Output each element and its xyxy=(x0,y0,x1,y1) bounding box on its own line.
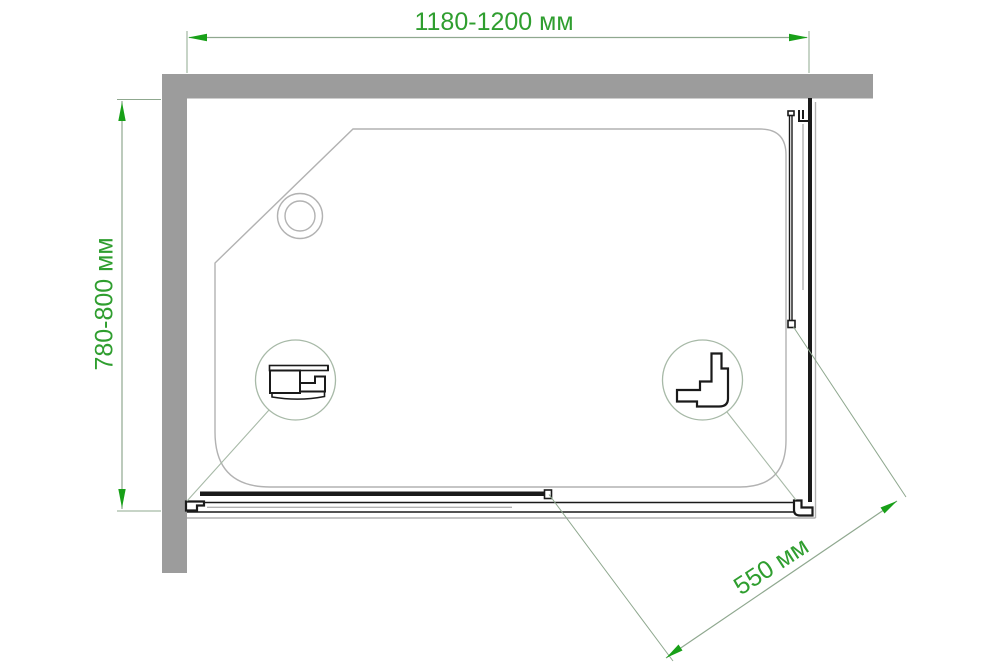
width-dimension-label: 1180-1200 мм xyxy=(414,8,573,36)
dimension-depth: 780-800 мм xyxy=(91,100,162,512)
detail-callout-right xyxy=(663,340,797,500)
dimension-width: 1180-1200 мм xyxy=(187,8,809,73)
door-arrow-lower xyxy=(666,645,683,659)
right-top-profile-hook xyxy=(799,110,808,121)
enclosure-outer-outline xyxy=(187,102,816,518)
door-glass-bottom-cap xyxy=(788,321,795,328)
right-side-panel-assembly xyxy=(788,98,813,516)
tray-outline xyxy=(215,129,786,487)
depth-extension-lines xyxy=(117,100,161,512)
bottom-sliding-door-glass xyxy=(200,492,545,497)
right-frame-profile xyxy=(808,98,812,502)
depth-arrow-bottom xyxy=(118,489,125,508)
door-arrow-upper xyxy=(881,501,898,514)
shower-tray xyxy=(215,129,786,487)
detail-callout-left xyxy=(187,340,336,501)
callout-left-leader-line xyxy=(187,410,269,501)
callout-left-circle xyxy=(256,340,336,420)
bottom-door-assembly xyxy=(186,490,794,512)
width-arrow-right xyxy=(789,34,808,41)
depth-arrow-top xyxy=(118,102,125,121)
door-glass-top-cap xyxy=(788,111,794,116)
left-wall xyxy=(162,74,187,573)
callout-right-circle xyxy=(663,340,743,420)
top-wall xyxy=(162,74,873,99)
technical-drawing-page: 1180-1200 мм 780-800 мм 550 мм xyxy=(0,0,1000,667)
corner-post-profile xyxy=(794,501,813,516)
right-sliding-door-glass xyxy=(790,114,793,321)
door-dimension-line xyxy=(666,501,897,658)
width-arrow-left xyxy=(188,34,207,41)
shower-enclosure-drawing: 1180-1200 мм 780-800 мм 550 мм xyxy=(0,0,1000,667)
drain-inner-circle xyxy=(285,201,315,231)
bottom-left-wall-profile xyxy=(186,502,204,511)
depth-dimension-label: 780-800 мм xyxy=(91,237,119,370)
drain-outer-circle xyxy=(278,194,323,239)
walls xyxy=(162,74,873,573)
